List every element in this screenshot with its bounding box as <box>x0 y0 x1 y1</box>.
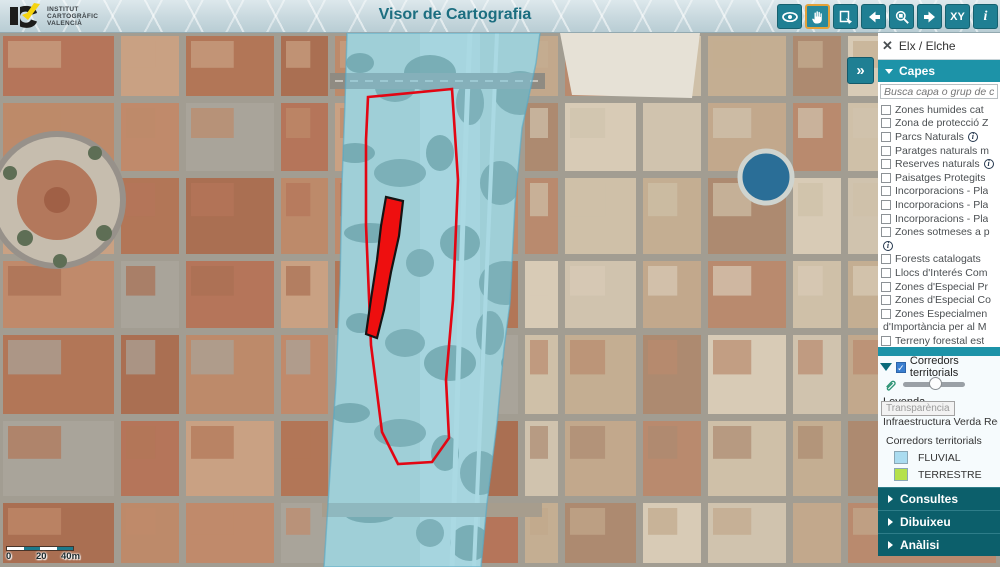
layer-checkbox[interactable] <box>881 105 891 115</box>
org-line: CARTOGRÀFIC <box>47 13 98 20</box>
layer-checkbox[interactable] <box>881 118 891 128</box>
section-consultes[interactable]: Consultes <box>878 487 1000 510</box>
layer-label: Incorporacions - Pla <box>895 199 988 211</box>
map-canvas[interactable] <box>0 33 1000 567</box>
layer-checkbox[interactable] <box>881 309 891 319</box>
eye-tool-button[interactable] <box>777 4 802 29</box>
layer-label: Terreny forestal est <box>895 335 984 347</box>
org-line: VALENCIÀ <box>47 20 98 27</box>
xy-tool-button[interactable]: XY <box>945 4 970 29</box>
layer-checkbox[interactable] <box>881 146 891 156</box>
layer-checkbox[interactable] <box>881 336 891 346</box>
layer-item[interactable]: Llocs d'Interés Com i <box>881 266 1000 280</box>
layer-checkbox[interactable] <box>881 295 891 305</box>
tool-label: XY <box>950 11 965 23</box>
layer-item[interactable]: Forests catalogats i <box>881 253 1000 267</box>
org-line: INSTITUT <box>47 6 98 13</box>
map-toolbar: XYi <box>777 4 998 29</box>
layer-checkbox[interactable] <box>881 268 891 278</box>
side-panel: ✕ Elx / Elche Capes Zones humides cat i … <box>878 33 1000 556</box>
layer-label: Zones d'Especial Co <box>895 294 991 306</box>
transparency-slider[interactable] <box>903 382 965 387</box>
page-title: Visor de Cartografia <box>320 6 590 24</box>
info-icon[interactable]: i <box>968 132 978 142</box>
layer-label: Zona de protecció Z <box>895 117 988 129</box>
layer-item[interactable]: Zona de protecció Z i <box>881 117 1000 131</box>
info-icon[interactable]: i <box>883 241 893 251</box>
layer-label: Forests catalogats <box>895 253 981 265</box>
history-back-button[interactable] <box>861 4 886 29</box>
visor-cartografia-app: 0 20 40m INSTITUT CARTOGRÀFIC VALENCIÀ V… <box>0 0 1000 567</box>
panel-sections: Consultes Dibuixeu Anàlisi <box>878 487 1000 556</box>
layer-info-wrap: i <box>881 239 1000 253</box>
tool-label: i <box>984 9 988 25</box>
legend-entry: TERRESTRE <box>880 466 998 483</box>
chevron-down-icon <box>885 69 893 74</box>
layer-item[interactable]: Terreny forestal est i <box>881 334 1000 347</box>
layer-label: Zones Especialmen <box>895 308 987 320</box>
extent-icon <box>838 9 854 25</box>
section-label: Dibuixeu <box>900 515 951 529</box>
layer-label: Parcs Naturals <box>895 131 964 143</box>
plaza <box>560 33 700 98</box>
layer-label: Incorporacions - Pla <box>895 185 988 197</box>
active-layer-label: Corredors territorials <box>910 355 998 379</box>
slider-handle[interactable] <box>929 377 942 390</box>
scale-label: 20 <box>36 551 47 562</box>
layer-checkbox[interactable] <box>881 186 891 196</box>
layer-label: Llocs d'Interés Com <box>895 267 987 279</box>
layer-label: Zones d'Especial Pr <box>895 281 988 293</box>
extent-tool-button[interactable] <box>833 4 858 29</box>
close-icon[interactable]: ✕ <box>882 38 893 54</box>
history-forward-button[interactable] <box>917 4 942 29</box>
scale-label: 40m <box>61 551 80 562</box>
layer-search-input[interactable] <box>880 84 998 99</box>
zoom-window-tool-button[interactable] <box>889 4 914 29</box>
layer-item[interactable]: Zones humides cat i <box>881 103 1000 117</box>
layer-checkbox[interactable] <box>881 254 891 264</box>
layer-checkbox[interactable] <box>881 159 891 169</box>
layer-label: Paratges naturals m <box>895 145 989 157</box>
layer-checkbox[interactable] <box>881 132 891 142</box>
zoom-window-icon <box>894 9 910 25</box>
paperclip-icon[interactable] <box>883 377 898 392</box>
layer-checkbox[interactable] <box>881 214 891 224</box>
chevron-right-icon <box>888 518 893 526</box>
chevron-right-icon <box>888 541 893 549</box>
location-label: Elx / Elche <box>899 39 956 53</box>
top-bar: INSTITUT CARTOGRÀFIC VALENCIÀ Visor de C… <box>0 0 1000 33</box>
section-anàlisi[interactable]: Anàlisi <box>878 533 1000 556</box>
legend-swatch <box>894 451 908 464</box>
layer-checkbox[interactable] <box>881 200 891 210</box>
legend-group-name: Corredors territorials <box>880 428 998 449</box>
section-dibuixeu[interactable]: Dibuixeu <box>878 510 1000 533</box>
icv-logo-mark <box>8 3 42 29</box>
layer-item[interactable]: Incorporacions - Pla i <box>881 198 1000 212</box>
chevron-right-icon <box>888 495 893 503</box>
section-label: Consultes <box>900 492 958 506</box>
arrow-left-icon <box>866 9 882 25</box>
capes-section-header[interactable]: Capes <box>878 60 1000 82</box>
layer-label: Paisatges Protegits <box>895 172 985 184</box>
legend-label: TERRESTRE <box>918 469 982 481</box>
legend-entry: FLUVIAL <box>880 449 998 466</box>
layer-item[interactable]: Paratges naturals m i <box>881 144 1000 158</box>
layer-item[interactable]: Reserves naturals i <box>881 157 1000 171</box>
legend-entries: FLUVIAL TERRESTRE <box>880 449 998 483</box>
layer-item[interactable]: Zones d'Especial Co i <box>881 293 1000 307</box>
capes-header-label: Capes <box>899 64 935 78</box>
legend-label: FLUVIAL <box>918 452 961 464</box>
active-layer-checkbox[interactable] <box>896 362 906 373</box>
layer-item[interactable]: Zones Especialmen i <box>881 307 1000 321</box>
active-layer-area: Corredors territorials Leyenda Transparè… <box>878 356 1000 487</box>
info-tool-button[interactable]: i <box>973 4 998 29</box>
aerial-imagery <box>0 33 1000 567</box>
layer-label: Incorporacions - Pla <box>895 213 988 225</box>
layer-item[interactable]: Parcs Naturals i <box>881 130 1000 144</box>
collapse-layer-icon[interactable] <box>880 363 892 371</box>
location-bar: ✕ Elx / Elche <box>878 33 1000 60</box>
layer-search-row <box>878 82 1000 101</box>
layer-checkbox[interactable] <box>881 282 891 292</box>
layer-checkbox[interactable] <box>881 227 891 237</box>
layer-label: Reserves naturals <box>895 158 980 170</box>
layer-item[interactable]: Zones d'Especial Pr i <box>881 280 1000 294</box>
layer-label: Zones sotmeses a p <box>895 226 990 238</box>
layer-item[interactable]: Paisatges Protegits i <box>881 171 1000 185</box>
scale-bar: 0 20 40m <box>6 546 86 563</box>
pan-tool-button[interactable] <box>805 4 830 29</box>
scale-label: 0 <box>6 551 11 562</box>
panel-collapse-button[interactable]: » <box>847 57 874 84</box>
active-layer-row[interactable]: Corredors territorials <box>880 359 998 375</box>
layer-item[interactable]: Incorporacions - Pla i <box>881 185 1000 199</box>
layer-label-wrap: d'Importància per al M <box>881 321 1000 335</box>
layer-label: Zones humides cat <box>895 104 984 116</box>
icv-logo: INSTITUT CARTOGRÀFIC VALENCIÀ <box>8 3 98 29</box>
layer-checkbox[interactable] <box>881 173 891 183</box>
arrow-right-icon <box>922 9 938 25</box>
layer-list: Zones humides cat i Zona de protecció Z … <box>878 101 1000 347</box>
layer-item[interactable]: Zones sotmeses a p i <box>881 225 1000 239</box>
layer-item[interactable]: Incorporacions - Pla i <box>881 212 1000 226</box>
transparency-tooltip: Transparència <box>881 401 955 416</box>
section-label: Anàlisi <box>900 538 939 552</box>
info-icon[interactable]: i <box>984 159 994 169</box>
eye-icon <box>781 9 799 25</box>
fountain <box>740 151 792 203</box>
hand-icon <box>810 9 826 25</box>
legend-swatch <box>894 468 908 481</box>
